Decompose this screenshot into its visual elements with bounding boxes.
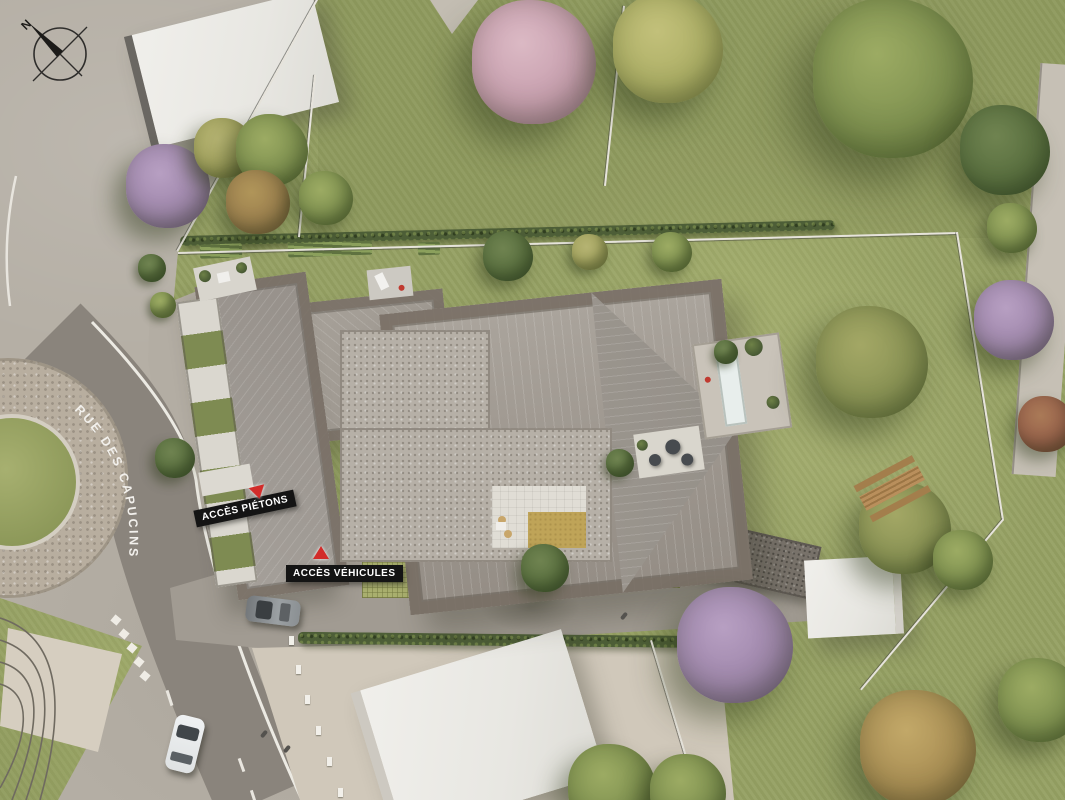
vehicle-access-text: ACCÈS VÉHICULES — [293, 568, 396, 579]
compass-icon: N — [14, 8, 106, 100]
compass-north-letter: N — [18, 17, 34, 33]
site-plan-rendering: ACCÈS PIÉTONS ACCÈS VÉHICULES RUE DES CA… — [0, 0, 1065, 800]
vehicle-access-marker — [313, 546, 329, 559]
svg-text:RUE DES CAPUCINS: RUE DES CAPUCINS — [72, 402, 141, 559]
street-name: RUE DES CAPUCINS — [72, 402, 141, 559]
vehicle-access-label: ACCÈS VÉHICULES — [286, 565, 403, 582]
street-name-layer: RUE DES CAPUCINS — [0, 0, 1065, 800]
